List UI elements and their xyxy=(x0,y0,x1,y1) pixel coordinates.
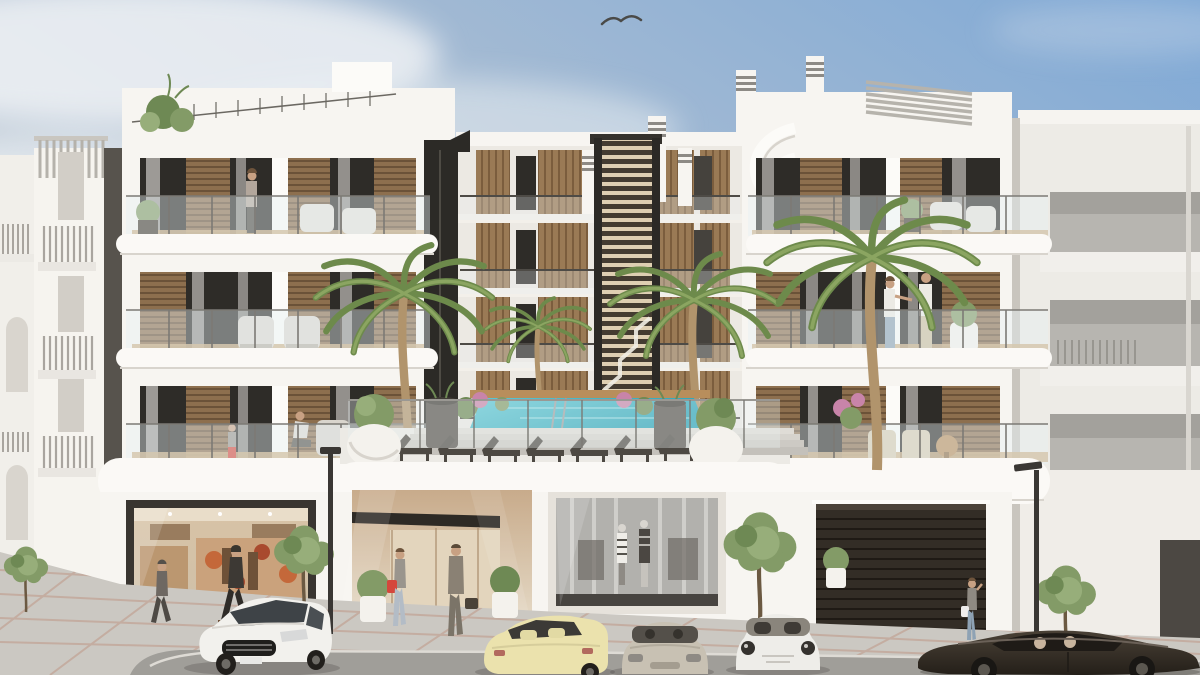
fashion-storefront xyxy=(548,492,726,614)
right-neighbor-building xyxy=(1012,110,1200,660)
recessed-balconies xyxy=(1040,192,1200,500)
car-white-sports xyxy=(736,614,820,670)
render-canvas xyxy=(0,0,1200,675)
car-beige-coupe xyxy=(622,622,708,674)
architectural-render xyxy=(0,0,1200,675)
